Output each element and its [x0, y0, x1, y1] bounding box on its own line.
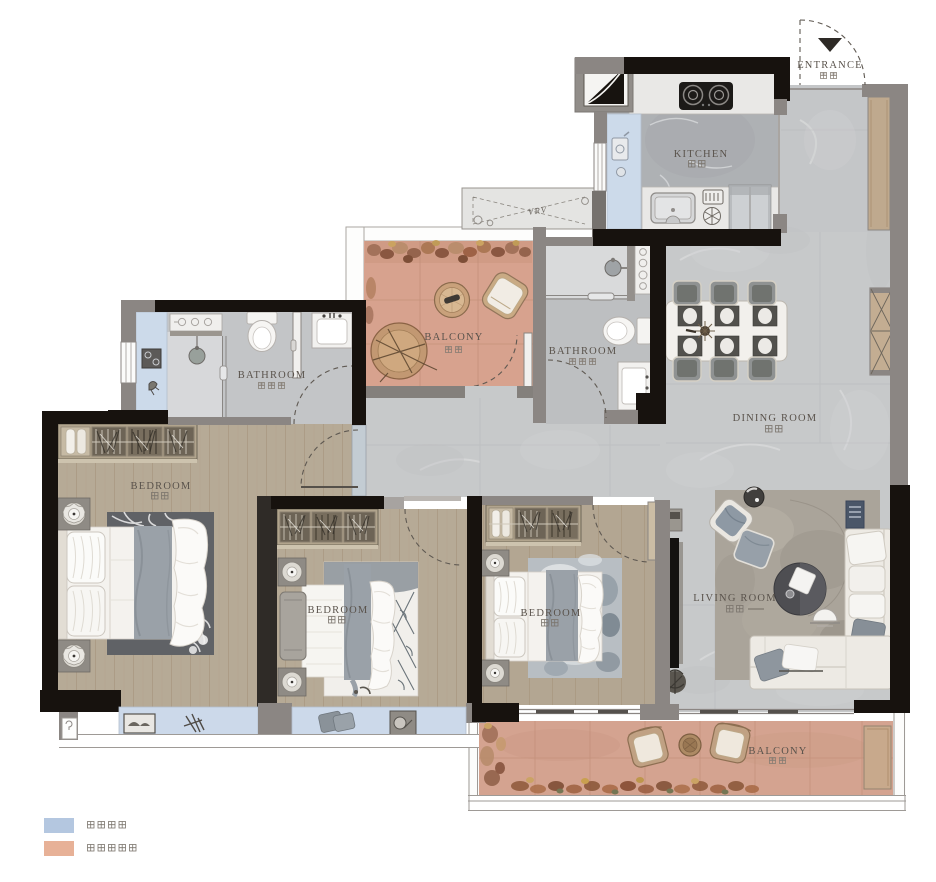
- svg-text:ENTRANCE: ENTRANCE: [797, 60, 863, 71]
- svg-text:BALCONY: BALCONY: [748, 746, 807, 757]
- svg-text:KITCHEN: KITCHEN: [674, 149, 728, 160]
- svg-text:BATHROOM: BATHROOM: [238, 370, 307, 381]
- svg-text:BEDROOM: BEDROOM: [521, 608, 582, 619]
- svg-text:DINING ROOM: DINING ROOM: [733, 413, 818, 424]
- svg-text:BATHROOM: BATHROOM: [549, 346, 618, 357]
- svg-text:LIVING ROOM: LIVING ROOM: [693, 593, 777, 604]
- svg-text:BALCONY: BALCONY: [424, 332, 483, 343]
- svg-text:BEDROOM: BEDROOM: [131, 481, 192, 492]
- svg-text:BEDROOM: BEDROOM: [308, 605, 369, 616]
